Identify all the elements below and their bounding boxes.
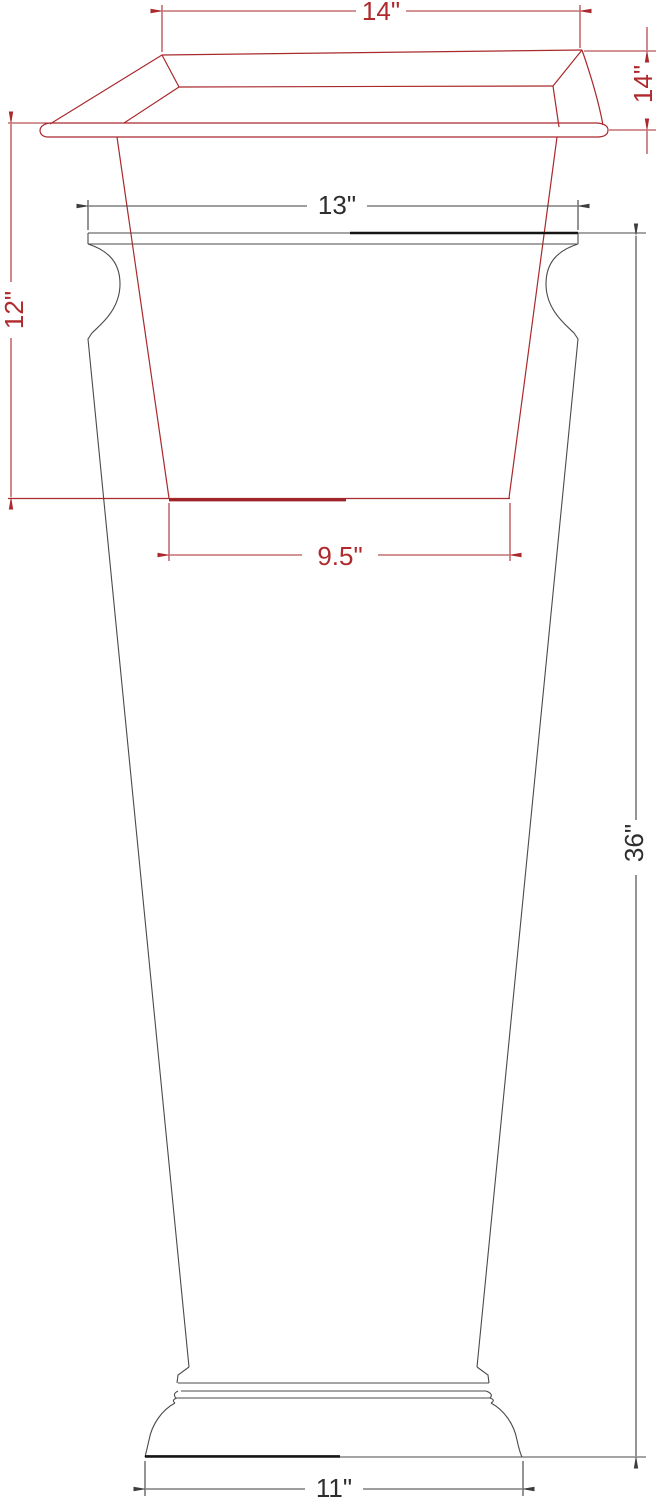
- dim-label-vase-opening: 13": [318, 190, 356, 220]
- vase-technical-drawing-page: 14" 14" 13" 12" 9.5" 36" 11": [0, 0, 659, 1500]
- vase-foot: [145, 1403, 646, 1457]
- dim-label-vase-height: 36": [619, 824, 649, 862]
- dim-label-insert-depth: 12": [0, 291, 29, 329]
- dim-label-insert-bottom-width: 9.5": [317, 541, 362, 571]
- vase-technical-drawing: 14" 14" 13" 12" 9.5" 36" 11": [0, 0, 659, 1500]
- vase-outline: [88, 233, 646, 1457]
- dim-label-vase-base-width: 11": [316, 1473, 352, 1500]
- dim-label-insert-rim-overhang: 14": [628, 65, 658, 103]
- insert-liner-outline: [8, 50, 608, 500]
- vase-left-wall: [88, 244, 189, 1367]
- dim-label-insert-rim-width: 14": [362, 0, 400, 26]
- insert-rim-plate: [40, 123, 608, 137]
- vase-base-collar: [173, 1367, 493, 1403]
- vase-right-wall: [477, 244, 578, 1367]
